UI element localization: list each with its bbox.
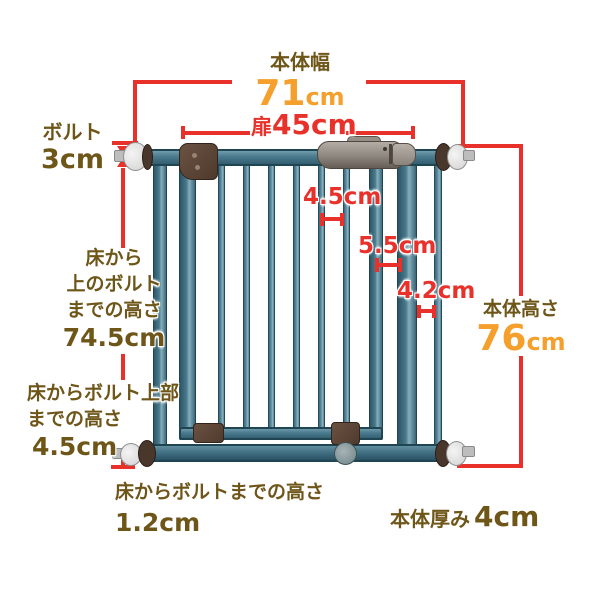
body-height-block: 本体高さ 76cm xyxy=(458,297,584,357)
gap-right-label: 4.2cm xyxy=(397,278,475,304)
body-thickness-value: 4cm xyxy=(474,500,539,533)
door-bar-2 xyxy=(243,163,250,433)
gap-right-tick-r xyxy=(432,305,436,318)
door-hinge-stile xyxy=(179,152,196,440)
door-latch-wheel xyxy=(334,442,357,465)
bolt-value: 3cm xyxy=(30,144,115,176)
gap-bars-label: 4.5cm xyxy=(303,184,381,210)
floor-bolt-value: 1.2cm xyxy=(115,508,324,538)
gap-bars-tick-r xyxy=(340,213,344,226)
floor-upper-bolt-value: 74.5cm xyxy=(50,323,178,353)
body-thickness-label: 本体厚み xyxy=(390,503,470,532)
body-width-label: 本体幅 xyxy=(225,46,375,75)
floor-bolt-top-line2: までの高さ xyxy=(27,406,179,432)
door-bar-3 xyxy=(268,163,275,433)
floor-bolt-line1: 床からボルトまでの高さ xyxy=(115,479,324,505)
body-width-unit: cm xyxy=(305,83,344,111)
body-height-number: 76 xyxy=(476,321,526,357)
floor-bolt-top-block: 床からボルト上部 までの高さ 4.5cm xyxy=(27,380,179,462)
body-width-number: 71 xyxy=(255,76,305,112)
floor-upper-bolt-block: 床から 上のボルト までの高さ 74.5cm xyxy=(50,245,178,353)
door-bar-4 xyxy=(293,163,300,433)
hinge-bracket xyxy=(179,143,218,180)
door-bar-1 xyxy=(218,163,225,433)
bolt-top-right-shaft xyxy=(463,150,475,161)
door-width-label: 扉45cm xyxy=(251,108,357,141)
gap-latch-label: 5.5cm xyxy=(358,233,436,259)
handle-dot xyxy=(383,147,387,151)
door-width-prefix: 扉 xyxy=(251,111,272,141)
floor-bolt-top-value: 4.5cm xyxy=(32,432,179,462)
floor-upper-bolt-line3: までの高さ xyxy=(50,297,178,323)
gap-bars-line xyxy=(322,217,342,221)
floor-upper-bolt-line2: 上のボルト xyxy=(50,271,178,297)
door-width-value: 45cm xyxy=(272,108,357,141)
product-dimension-diagram: 本体幅 71cm 扉45cm ボルト 3cm 床から 上のボルト までの高さ 7… xyxy=(0,0,600,600)
door-hinge-foot xyxy=(193,423,224,443)
gate-bottom-bar xyxy=(146,444,446,462)
body-width-value: 71cm xyxy=(225,76,375,112)
body-height-unit: cm xyxy=(526,328,565,356)
bolt-label-block: ボルト 3cm xyxy=(30,120,115,176)
bolt-label: ボルト xyxy=(30,120,115,144)
gap-latch-tick-r xyxy=(398,258,402,272)
hinge-screw-2 xyxy=(195,165,200,170)
body-thickness-block: 本体厚み4cm xyxy=(390,500,539,533)
gate-right-post xyxy=(397,160,417,450)
floor-bolt-top-line1: 床からボルト上部 xyxy=(27,380,179,406)
bolt-bottom-right-shaft xyxy=(462,446,475,457)
floor-bolt-block: 床からボルトまでの高さ 1.2cm xyxy=(115,479,324,538)
gap-latch-line xyxy=(377,263,400,267)
handle-seam xyxy=(389,144,392,164)
hinge-screw-1 xyxy=(192,153,197,158)
bolt-top-left-ring xyxy=(142,144,153,170)
handle-button xyxy=(392,143,416,166)
floor-upper-bolt-line1: 床から xyxy=(50,245,178,271)
